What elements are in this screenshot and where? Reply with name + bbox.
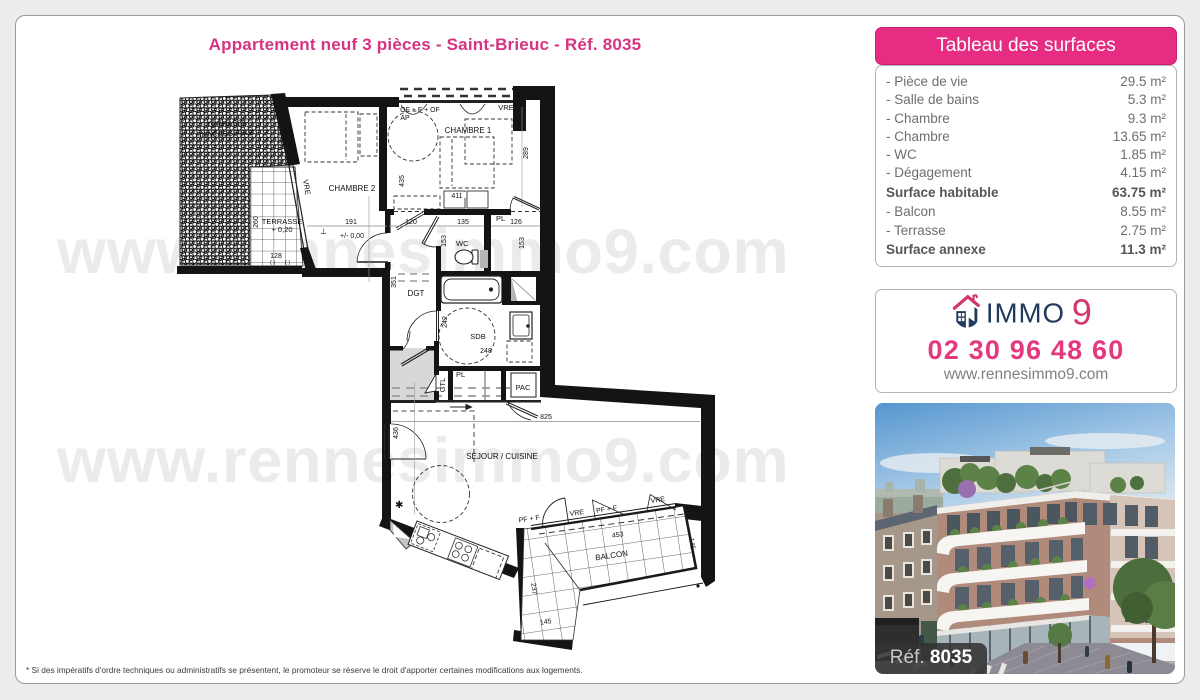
svg-text:248: 248 <box>480 348 492 355</box>
svg-text:825: 825 <box>540 414 552 421</box>
svg-text:IMMO: IMMO <box>986 298 1065 329</box>
svg-text:VRE: VRE <box>498 103 513 112</box>
svg-text:135: 135 <box>457 219 469 226</box>
svg-text:436: 436 <box>393 427 400 439</box>
svg-text:VRE: VRE <box>650 496 666 505</box>
svg-text:PL: PL <box>456 370 465 379</box>
svg-text:⊥: ⊥ <box>320 227 327 236</box>
svg-text:9: 9 <box>1072 292 1092 332</box>
svg-text:WC: WC <box>456 239 469 248</box>
svg-text:126: 126 <box>510 219 522 226</box>
svg-text:( ): ( ) <box>285 260 290 266</box>
svg-text:153: 153 <box>519 237 526 249</box>
svg-text:OF + F + OF: OF + F + OF <box>400 107 440 114</box>
svg-text:+ 0,20: + 0,20 <box>271 225 292 234</box>
svg-text:260: 260 <box>253 216 260 228</box>
svg-text:242: 242 <box>442 316 449 328</box>
svg-text:411: 411 <box>451 193 462 200</box>
svg-text:PL: PL <box>496 214 505 223</box>
svg-text:SDB: SDB <box>470 332 485 341</box>
svg-text:289: 289 <box>523 147 530 159</box>
svg-text:✱: ✱ <box>395 500 403 511</box>
svg-text:GTL: GTL <box>438 378 447 393</box>
svg-text:+/- 0,00: +/- 0,00 <box>340 233 364 240</box>
svg-text:435: 435 <box>399 175 406 187</box>
svg-text:PF + F: PF + F <box>596 505 618 515</box>
svg-text:128: 128 <box>270 253 282 260</box>
svg-text:191: 191 <box>345 219 357 226</box>
svg-text:351: 351 <box>391 276 398 288</box>
svg-text:PAC: PAC <box>516 383 531 392</box>
svg-text:120: 120 <box>405 219 417 226</box>
svg-text:CHAMBRE 1: CHAMBRE 1 <box>445 126 492 135</box>
svg-text:CHAMBRE 2: CHAMBRE 2 <box>329 184 376 193</box>
svg-text:153: 153 <box>441 235 448 247</box>
svg-text:PF + F: PF + F <box>518 515 540 525</box>
svg-text:SEJOUR / CUISINE: SEJOUR / CUISINE <box>466 452 538 461</box>
svg-text:DGT: DGT <box>408 289 425 298</box>
svg-text:AP: AP <box>400 115 410 122</box>
svg-text:VRE: VRE <box>301 179 313 196</box>
svg-text:( ): ( ) <box>270 260 275 266</box>
svg-text:VRE: VRE <box>569 509 585 518</box>
